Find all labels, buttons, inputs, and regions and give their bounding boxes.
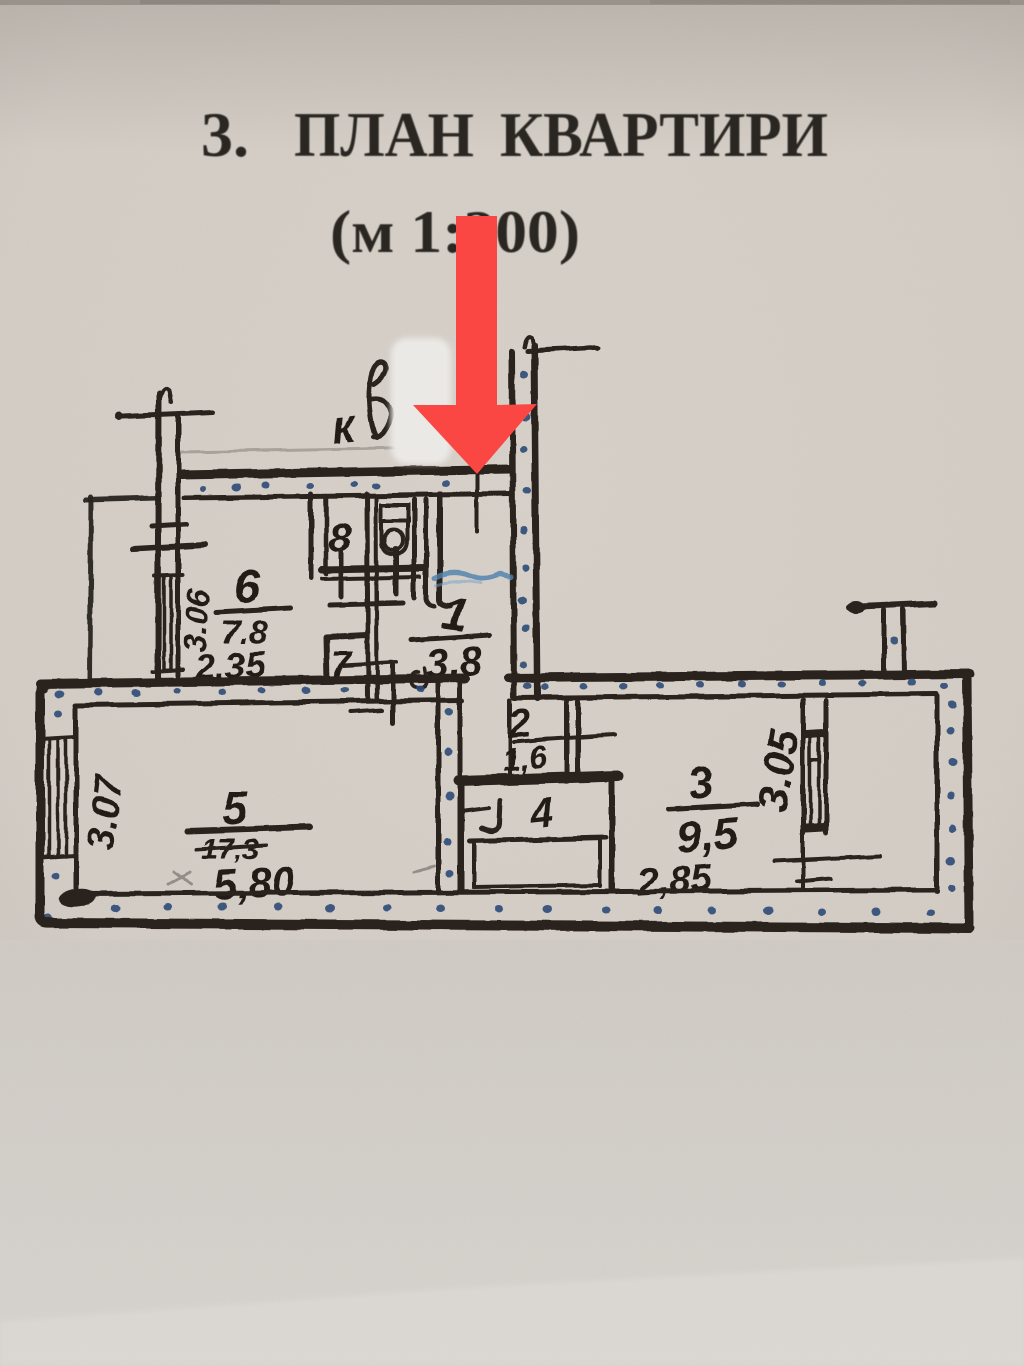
svg-text:2,85: 2,85 (635, 857, 714, 904)
svg-text:6: 6 (234, 560, 260, 612)
svg-text:3: 3 (686, 758, 715, 809)
svg-text:КВАРТИРИ: КВАРТИРИ (500, 99, 828, 170)
svg-text:1,6: 1,6 (501, 738, 549, 778)
svg-text:(м 1:200): (м 1:200) (330, 199, 580, 265)
svg-text:9,5: 9,5 (675, 809, 741, 863)
svg-text:ПЛАН: ПЛАН (294, 99, 474, 170)
svg-text:4: 4 (527, 788, 556, 837)
svg-text:3.06: 3.06 (177, 588, 216, 652)
svg-text:3.: 3. (201, 99, 249, 170)
svg-text:5,80: 5,80 (212, 858, 296, 909)
